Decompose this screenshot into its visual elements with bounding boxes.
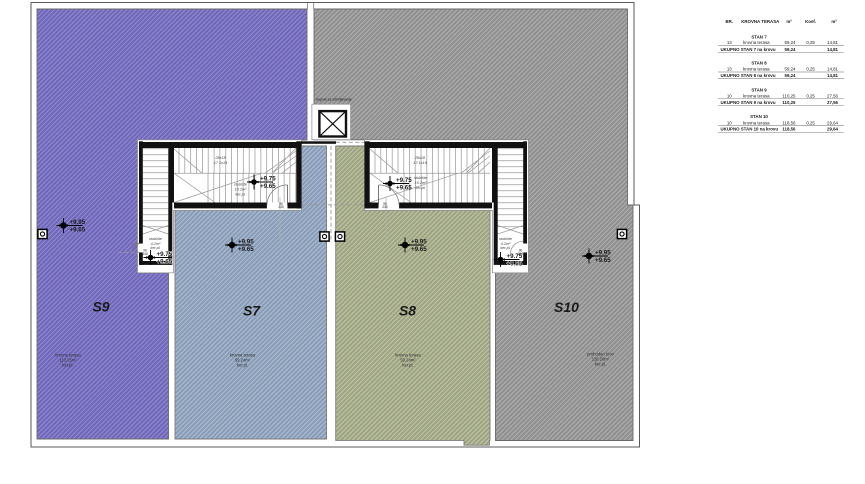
svg-text:+9.75: +9.75: [157, 251, 173, 258]
svg-text:+9.65: +9.65: [396, 184, 412, 191]
svg-text:+9.95: +9.95: [411, 239, 427, 246]
svg-text:10: 10: [727, 93, 732, 98]
svg-text:14,81: 14,81: [827, 73, 839, 78]
svg-text:110,25: 110,25: [782, 93, 796, 98]
svg-text:krovna terasa: krovna terasa: [743, 120, 770, 125]
svg-text:13: 13: [727, 67, 732, 72]
svg-text:59,24: 59,24: [785, 47, 797, 52]
svg-text:ker.pl.: ker.pl.: [402, 363, 413, 368]
svg-text:kupola za odimljavanje: kupola za odimljavanje: [316, 98, 351, 102]
svg-text:stubište: stubište: [499, 237, 512, 241]
svg-text:STAN 7: STAN 7: [751, 34, 767, 39]
svg-text:STAN 8: STAN 8: [751, 61, 767, 66]
svg-text:STAN 9: STAN 9: [751, 88, 767, 93]
svg-text:ker.pl.: ker.pl.: [237, 363, 248, 368]
svg-text:10.2m²: 10.2m²: [415, 181, 428, 185]
svg-text:118,56: 118,56: [782, 127, 796, 132]
svg-text:59,24: 59,24: [785, 73, 797, 78]
svg-text:118,56: 118,56: [782, 120, 796, 125]
svg-text:+9.75: +9.75: [396, 177, 412, 184]
svg-text:59,24: 59,24: [785, 40, 797, 45]
svg-text:110,25: 110,25: [782, 100, 796, 105]
svg-text:krovna terasa: krovna terasa: [743, 40, 770, 45]
svg-text:29,64: 29,64: [827, 127, 839, 132]
svg-text:+9.65: +9.65: [238, 246, 254, 253]
svg-text:stubište: stubište: [149, 237, 162, 241]
svg-text:28x18: 28x18: [414, 156, 426, 160]
svg-text:KROVNA TERASA: KROVNA TERASA: [741, 19, 780, 24]
svg-text:0,25: 0,25: [806, 40, 815, 45]
svg-text:13: 13: [727, 40, 732, 45]
svg-text:stubište: stubište: [414, 176, 427, 180]
svg-text:29,64: 29,64: [827, 120, 839, 125]
svg-text:27,56: 27,56: [827, 93, 839, 98]
svg-text:240: 240: [518, 252, 524, 256]
svg-text:ker.pl.: ker.pl.: [235, 193, 245, 197]
svg-text:0,25: 0,25: [806, 67, 815, 72]
svg-text:240: 240: [142, 252, 148, 256]
svg-text:10.2m²: 10.2m²: [235, 188, 248, 192]
svg-text:59,24: 59,24: [785, 67, 797, 72]
svg-text:0,25: 0,25: [806, 120, 815, 125]
svg-text:BR.: BR.: [726, 19, 734, 24]
svg-text:+9.65: +9.65: [70, 226, 86, 233]
svg-text:ker.pl.: ker.pl.: [62, 363, 73, 368]
svg-text:+9.65: +9.65: [595, 257, 611, 264]
svg-text:14,81: 14,81: [827, 40, 839, 45]
svg-text:UKUPNO STAN 7 na krovu: UKUPNO STAN 7 na krovu: [721, 47, 776, 52]
svg-text:ker.pl.: ker.pl.: [415, 186, 425, 190]
svg-text:+9.65: +9.65: [411, 246, 427, 253]
svg-text:S10: S10: [554, 299, 579, 315]
svg-text:240: 240: [382, 205, 388, 209]
svg-text:m²: m²: [831, 19, 837, 24]
svg-text:17.1x19: 17.1x19: [413, 161, 427, 165]
svg-text:+9.65: +9.65: [157, 258, 173, 265]
svg-text:ker.pl.: ker.pl.: [150, 246, 160, 250]
svg-text:+9.95: +9.95: [238, 239, 254, 246]
svg-text:17.1x19: 17.1x19: [214, 161, 228, 165]
svg-text:27,56: 27,56: [827, 100, 839, 105]
svg-text:UKUPNO STAN 8 na krovu: UKUPNO STAN 8 na krovu: [721, 73, 776, 78]
svg-text:+9.65: +9.65: [507, 260, 523, 267]
svg-text:STAN 10: STAN 10: [750, 114, 768, 119]
svg-text:10: 10: [727, 120, 732, 125]
svg-text:14,81: 14,81: [827, 47, 839, 52]
svg-text:0,25: 0,25: [806, 93, 815, 98]
svg-text:+9.95: +9.95: [70, 219, 86, 226]
svg-text:ker.pl.: ker.pl.: [595, 362, 606, 367]
svg-text:14,81: 14,81: [827, 67, 839, 72]
svg-text:krovna terasa: krovna terasa: [743, 67, 770, 72]
svg-text:+9.65: +9.65: [260, 183, 276, 190]
svg-text:28x18: 28x18: [214, 156, 226, 160]
svg-text:stubište: stubište: [234, 183, 247, 187]
svg-text:+9.75: +9.75: [260, 176, 276, 183]
svg-text:+9.95: +9.95: [595, 250, 611, 257]
svg-text:Koef.: Koef.: [805, 19, 816, 24]
svg-text:S9: S9: [92, 299, 109, 315]
svg-text:ker.pl.: ker.pl.: [500, 246, 510, 250]
svg-text:UKUPNO STAN 10 na krovu: UKUPNO STAN 10 na krovu: [721, 127, 779, 132]
svg-text:S8: S8: [399, 303, 416, 319]
svg-text:S7: S7: [243, 303, 261, 319]
svg-text:UKUPNO STAN 9 na krovu: UKUPNO STAN 9 na krovu: [721, 100, 776, 105]
svg-text:240: 240: [278, 205, 284, 209]
svg-text:krovna terasa: krovna terasa: [743, 93, 770, 98]
svg-text:m²: m²: [786, 19, 792, 24]
